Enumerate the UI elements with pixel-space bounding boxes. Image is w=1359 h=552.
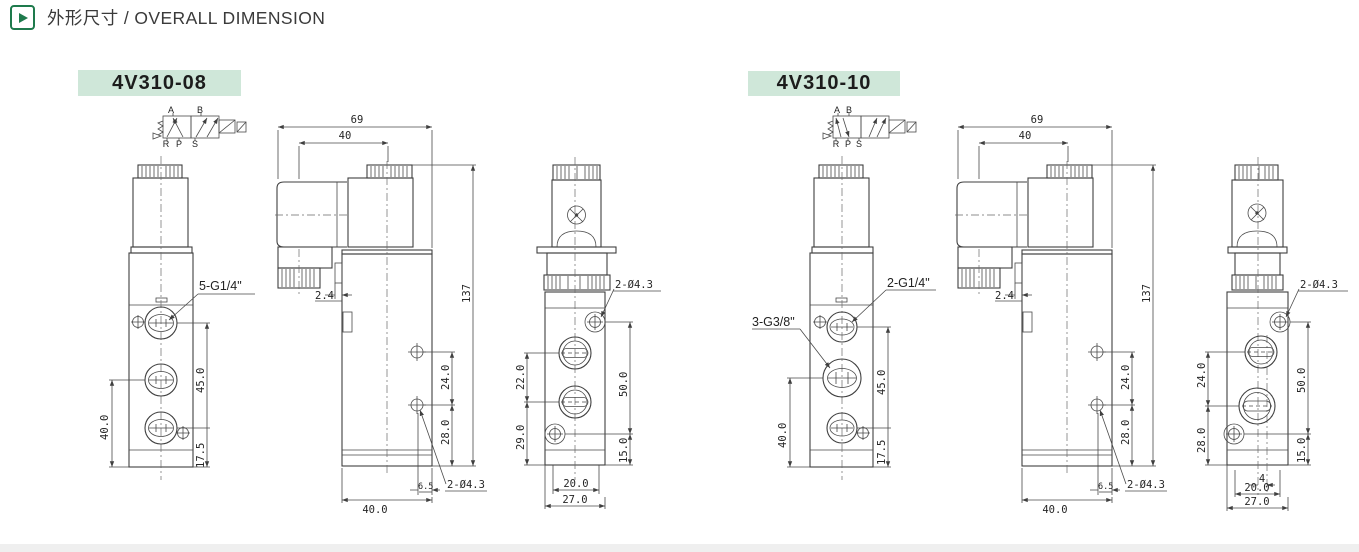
port-thread-label-mid: 3-G3/8" <box>752 315 795 329</box>
connector-screw <box>1248 204 1266 222</box>
dim-6-5: 6.5 <box>418 482 433 492</box>
dim-15: 15.0 <box>618 438 630 463</box>
dim-50: 50.0 <box>618 372 630 397</box>
symbol-body <box>153 113 246 141</box>
holes-label: 2-Ø4.3 <box>1300 279 1338 291</box>
symbol-body <box>823 113 916 141</box>
ports <box>131 307 190 444</box>
dimensions: 69 40 137 2.4 24.0 28.0 6.5 2-Ø4.3 40.0 <box>278 114 487 516</box>
dim-45: 45.0 <box>195 368 207 393</box>
overall-dimension-page: 外形尺寸 / OVERALL DIMENSION 4V310-08 4V310-… <box>0 0 1359 552</box>
dimensions: 40.0 45.0 17.5 <box>777 327 891 467</box>
dim-28: 28.0 <box>440 420 452 445</box>
dim-24: 24.0 <box>1196 363 1208 388</box>
front-view-4v310-08: 5-G1/4" 40.0 45.0 17.5 <box>105 148 275 528</box>
holes-label: 2-Ø4.3 <box>447 479 485 491</box>
dim-69: 69 <box>1031 114 1044 126</box>
dim-40: 40.0 <box>99 415 111 440</box>
dim-45: 45.0 <box>876 370 888 395</box>
dim-17-5: 17.5 <box>876 440 888 465</box>
symbol-port-a: A <box>834 105 840 115</box>
dim-29: 29.0 <box>515 425 527 450</box>
bottom-divider <box>0 544 1359 552</box>
dim-24: 24.0 <box>440 365 452 390</box>
mounting-holes <box>1088 343 1106 414</box>
symbol-port-a: A <box>168 105 174 115</box>
dim-22: 22.0 <box>515 365 527 390</box>
dim-27: 27.0 <box>562 494 587 506</box>
front-view-4v310-10: 2-G1/4" 3-G3/8" 40.0 45.0 17.5 <box>740 148 940 528</box>
centerlines <box>275 161 387 475</box>
model-label-4v310-08: 4V310-08 <box>78 70 241 96</box>
side-view-4v310-10: 69 40 137 2.4 24.0 28.0 6.5 2-Ø4.3 40.0 <box>955 103 1170 528</box>
dim-6-5: 6.5 <box>1098 482 1113 492</box>
valve-outline <box>277 165 432 466</box>
dim-50: 50.0 <box>1296 368 1308 393</box>
ports <box>813 312 870 443</box>
centerlines <box>1258 157 1267 495</box>
dimensions: 69 40 137 2.4 24.0 28.0 6.5 2-Ø4.3 40.0 <box>958 114 1167 516</box>
page-title: 外形尺寸 / OVERALL DIMENSION <box>47 5 325 30</box>
port-label-group: 5-G1/4" <box>169 279 255 320</box>
dim-40-coil: 40 <box>339 130 352 142</box>
port-thread-label: 5-G1/4" <box>199 279 242 293</box>
dim-40-coil: 40 <box>1019 130 1032 142</box>
dim-137: 137 <box>461 284 473 303</box>
symbol-port-b: B <box>197 105 203 115</box>
side-view-4v310-08: 69 40 137 2.4 24.0 28.0 6.5 2-Ø4.3 40.0 <box>275 103 490 528</box>
connector-screw <box>568 206 586 224</box>
valve-symbol-4v310-10: A B R P S <box>803 104 928 148</box>
dim-20: 20.0 <box>563 478 588 490</box>
dimensions: 2-Ø4.3 24.0 28.0 50.0 15.0 4 20.0 27.0 <box>1196 279 1348 511</box>
dim-28: 28.0 <box>1196 428 1208 453</box>
dim-40: 40.0 <box>777 423 789 448</box>
centerlines <box>955 161 1067 475</box>
dim-2-4: 2.4 <box>995 290 1014 302</box>
dimensions: 2-Ø4.3 22.0 29.0 50.0 15.0 20.0 27.0 <box>515 279 661 509</box>
port-label-group: 2-G1/4" 3-G3/8" <box>752 276 936 368</box>
dim-69: 69 <box>351 114 364 126</box>
section-header: 外形尺寸 / OVERALL DIMENSION <box>10 5 325 30</box>
valve-outline <box>1227 165 1288 465</box>
dim-15: 15.0 <box>1296 438 1308 463</box>
dim-40-base: 40.0 <box>362 504 387 516</box>
mounting-holes <box>408 343 426 414</box>
dim-20: 20.0 <box>1244 482 1269 494</box>
valve-outline <box>537 165 616 465</box>
dim-24: 24.0 <box>1120 365 1132 390</box>
symbol-port-b: B <box>846 105 852 115</box>
port-thread-label-top: 2-G1/4" <box>887 276 930 290</box>
model-label-4v310-10: 4V310-10 <box>748 71 900 96</box>
end-view-4v310-08: 2-Ø4.3 22.0 29.0 50.0 15.0 20.0 27.0 <box>505 145 680 530</box>
end-view-4v310-10: 2-Ø4.3 24.0 28.0 50.0 15.0 4 20.0 27.0 <box>1180 145 1359 530</box>
play-icon <box>10 5 35 30</box>
valve-outline <box>957 165 1112 466</box>
holes-label: 2-Ø4.3 <box>1127 479 1165 491</box>
dim-27: 27.0 <box>1244 496 1269 508</box>
dim-17-5: 17.5 <box>195 443 207 468</box>
holes-label: 2-Ø4.3 <box>615 279 653 291</box>
dim-137: 137 <box>1141 284 1153 303</box>
dim-40-base: 40.0 <box>1042 504 1067 516</box>
valve-symbol-4v310-08: A B R P S <box>133 104 253 148</box>
valve-outline <box>810 165 873 467</box>
dim-2-4: 2.4 <box>315 290 334 302</box>
dim-28: 28.0 <box>1120 420 1132 445</box>
